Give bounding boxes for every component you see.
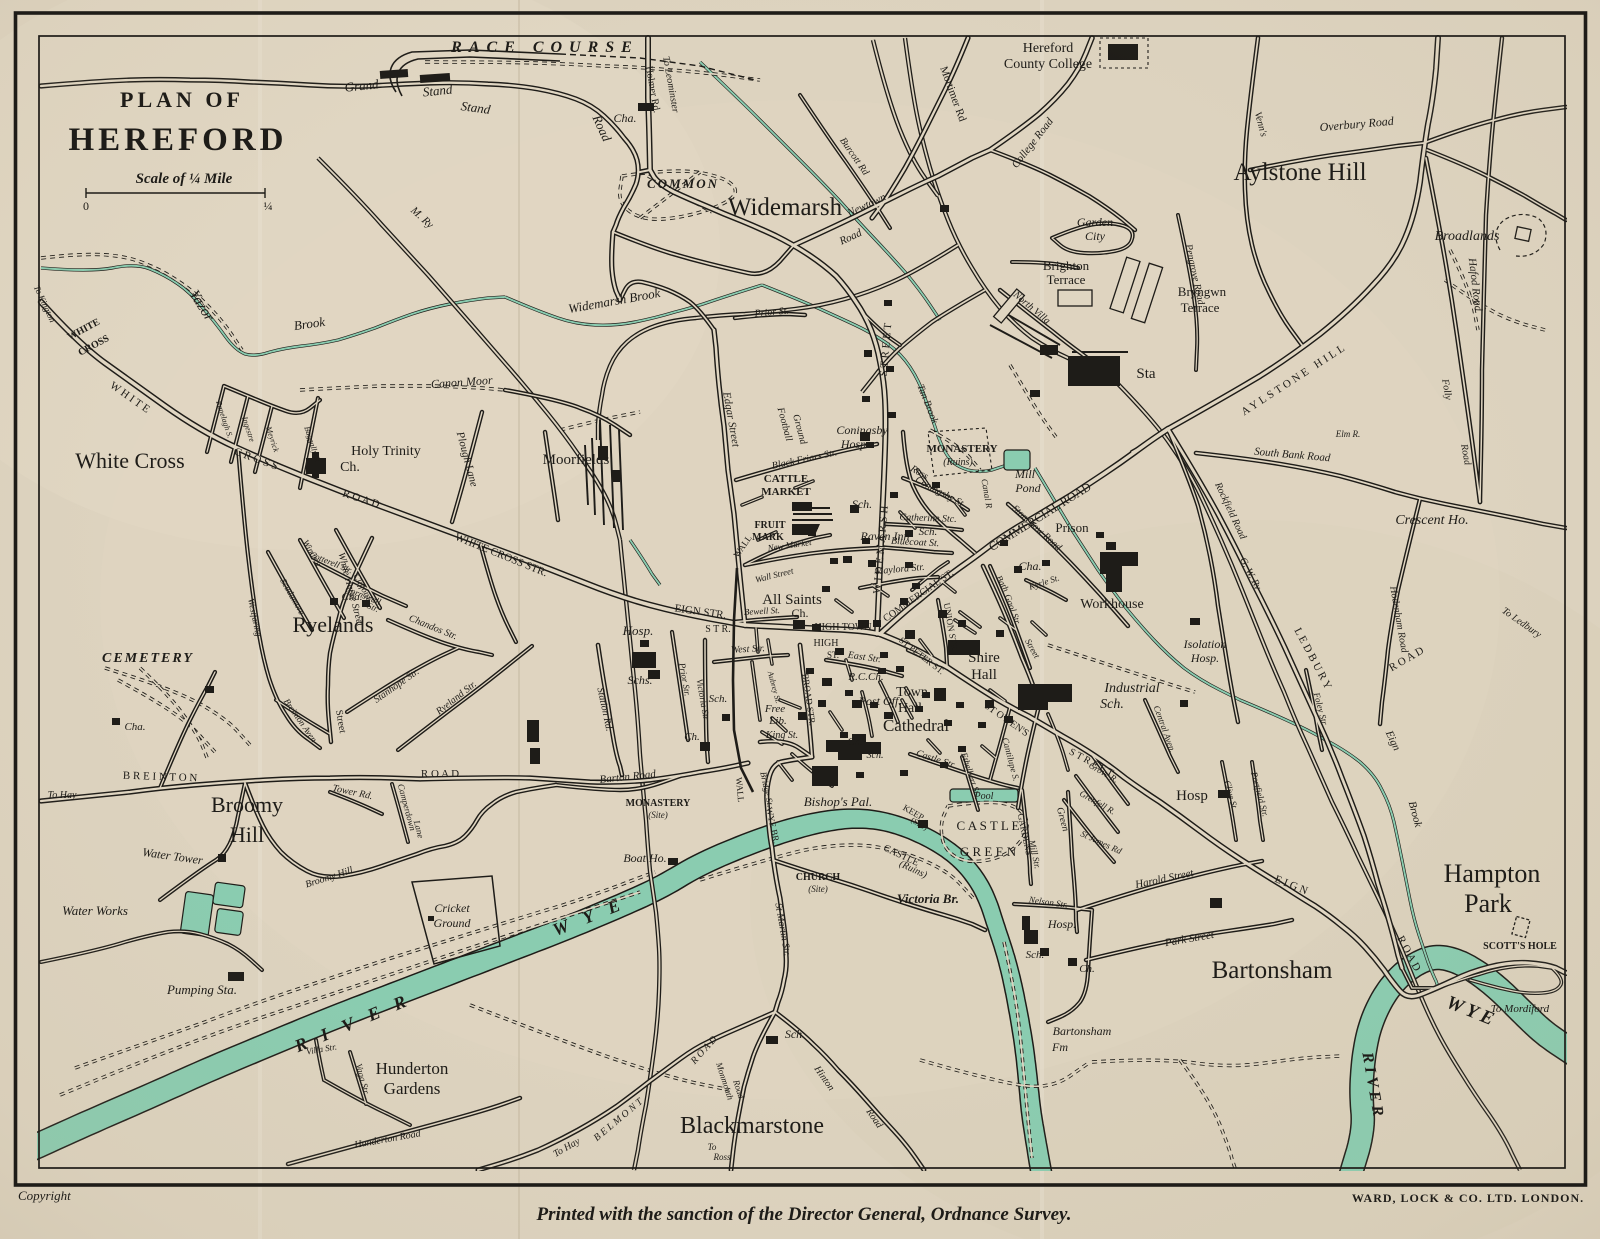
svg-text:Holy Trinity: Holy Trinity — [351, 444, 421, 459]
svg-text:Sch.: Sch. — [709, 693, 728, 705]
svg-text:Park: Park — [1464, 889, 1512, 918]
svg-text:MONASTERY: MONASTERY — [626, 798, 691, 809]
svg-text:CATTLE: CATTLE — [764, 473, 808, 485]
svg-text:Aylstone Hill: Aylstone Hill — [1233, 159, 1366, 186]
svg-text:Bartonsham: Bartonsham — [1053, 1024, 1112, 1038]
svg-text:Sch.: Sch. — [919, 526, 938, 538]
svg-text:Post Off.: Post Off. — [858, 694, 902, 708]
svg-text:Sch.: Sch. — [1100, 697, 1124, 712]
svg-text:Printed with the sanction of t: Printed with the sanction of the Directo… — [535, 1204, 1071, 1225]
svg-text:Widemarsh: Widemarsh — [728, 194, 843, 221]
svg-text:SCOTT'S HOLE: SCOTT'S HOLE — [1483, 941, 1557, 952]
svg-text:County College: County College — [1004, 57, 1092, 72]
svg-text:Catherine Stc.: Catherine Stc. — [899, 512, 957, 525]
svg-text:Cha.: Cha. — [124, 721, 145, 733]
svg-text:R.C.Ch.: R.C.Ch. — [847, 671, 883, 683]
svg-text:Gardens: Gardens — [384, 1079, 441, 1098]
svg-text:Pool: Pool — [974, 791, 994, 802]
svg-text:Sta: Sta — [1136, 366, 1156, 382]
svg-text:Hall: Hall — [898, 701, 922, 716]
svg-text:Bartonsham: Bartonsham — [1212, 957, 1333, 984]
svg-text:(Ruins): (Ruins) — [943, 457, 973, 468]
svg-text:Victoria Br.: Victoria Br. — [897, 891, 959, 906]
svg-text:Mill: Mill — [1014, 467, 1036, 481]
svg-text:Stand: Stand — [422, 81, 454, 99]
svg-text:Scale of ¼ Mile: Scale of ¼ Mile — [136, 171, 233, 187]
svg-text:Moorfields: Moorfields — [543, 452, 610, 468]
svg-text:CHURCH: CHURCH — [796, 872, 841, 883]
svg-text:PLAN OF: PLAN OF — [120, 87, 244, 112]
svg-text:Industrial: Industrial — [1103, 681, 1159, 696]
svg-text:Free: Free — [764, 703, 785, 715]
svg-text:R O A D: R O A D — [421, 768, 459, 780]
svg-text:Hampton: Hampton — [1444, 859, 1541, 888]
svg-text:C A S T L E: C A S T L E — [957, 818, 1020, 833]
svg-text:(Site): (Site) — [648, 810, 668, 820]
svg-text:Shire: Shire — [968, 650, 1000, 666]
svg-text:Blackmarstone: Blackmarstone — [680, 1113, 824, 1139]
svg-text:Isolation: Isolation — [1183, 637, 1227, 651]
svg-text:Hill: Hill — [230, 822, 264, 847]
svg-text:To: To — [708, 1142, 717, 1152]
svg-text:Bishop's Pal.: Bishop's Pal. — [804, 794, 873, 809]
svg-text:Brighton: Brighton — [1043, 258, 1090, 273]
svg-text:S T R.: S T R. — [705, 624, 730, 635]
svg-text:Pumping Sta.: Pumping Sta. — [166, 982, 237, 997]
svg-text:Bewell St.: Bewell St. — [744, 605, 780, 617]
svg-text:Broadlands: Broadlands — [1435, 229, 1500, 244]
svg-text:Hosp.: Hosp. — [1047, 917, 1076, 931]
svg-text:Hosp.: Hosp. — [622, 623, 654, 638]
svg-text:Elm R.: Elm R. — [1335, 429, 1361, 439]
svg-text:Sch.: Sch. — [867, 750, 884, 761]
svg-text:HEREFORD: HEREFORD — [68, 122, 287, 158]
svg-text:Fm: Fm — [1051, 1040, 1068, 1054]
svg-text:Coningsby: Coningsby — [836, 423, 888, 437]
svg-text:Cha.: Cha. — [1018, 559, 1041, 573]
svg-text:Sch.: Sch. — [852, 497, 872, 511]
svg-text:Sch.: Sch. — [1026, 949, 1045, 961]
svg-text:Cathedral: Cathedral — [883, 716, 949, 735]
svg-text:King St.: King St. — [765, 730, 798, 741]
svg-text:Ch.: Ch. — [340, 460, 360, 475]
svg-text:Prison: Prison — [1055, 520, 1089, 535]
svg-text:Pond: Pond — [1014, 481, 1041, 495]
svg-text:Sch.: Sch. — [785, 1027, 805, 1041]
svg-text:0: 0 — [83, 199, 89, 213]
svg-text:To Hay: To Hay — [48, 790, 77, 801]
svg-text:G R E E N: G R E E N — [960, 844, 1017, 859]
svg-text:West Str.: West Str. — [731, 643, 766, 656]
svg-text:White Cross: White Cross — [75, 448, 184, 473]
svg-text:Broomy: Broomy — [211, 792, 283, 817]
svg-text:Hall: Hall — [971, 667, 997, 683]
svg-text:To Mordiford: To Mordiford — [1491, 1003, 1550, 1015]
svg-text:RACE COURSE: RACE COURSE — [450, 39, 639, 56]
svg-text:Ch.: Ch. — [847, 736, 863, 748]
svg-text:Cricket: Cricket — [434, 901, 470, 915]
svg-text:MONASTERY: MONASTERY — [926, 443, 997, 455]
svg-text:Lib.: Lib. — [768, 715, 786, 727]
svg-text:Hosp.: Hosp. — [840, 437, 869, 451]
svg-text:Ground: Ground — [434, 916, 472, 930]
svg-text:Schs.: Schs. — [628, 673, 653, 687]
svg-text:Ross: Ross — [712, 1152, 731, 1162]
svg-text:Hosp.: Hosp. — [1190, 651, 1219, 665]
svg-text:COMMON: COMMON — [647, 176, 719, 191]
svg-text:Ch.: Ch. — [791, 606, 808, 620]
svg-text:Water Works: Water Works — [62, 903, 128, 918]
svg-text:Cha.: Cha. — [613, 111, 636, 125]
svg-text:MARKET: MARKET — [761, 486, 811, 498]
svg-text:Ch.: Ch. — [684, 731, 700, 743]
svg-text:Hosp: Hosp — [1176, 788, 1208, 804]
svg-text:Hunderton: Hunderton — [376, 1059, 449, 1078]
svg-text:¼: ¼ — [264, 199, 273, 213]
svg-text:Terrace: Terrace — [1047, 272, 1086, 287]
svg-text:(Site): (Site) — [808, 884, 828, 894]
svg-text:City: City — [1085, 229, 1106, 243]
svg-text:Boat Ho.: Boat Ho. — [623, 851, 666, 865]
svg-text:Garden: Garden — [1077, 215, 1113, 229]
svg-text:CEMETERY: CEMETERY — [102, 651, 194, 666]
svg-text:Hereford: Hereford — [1023, 41, 1074, 56]
svg-text:Workhouse: Workhouse — [1080, 597, 1143, 612]
svg-text:Crescent Ho.: Crescent Ho. — [1395, 513, 1468, 528]
svg-text:ST.: ST. — [827, 650, 839, 660]
svg-text:Copyright: Copyright — [18, 1188, 71, 1203]
svg-text:WARD, LOCK & CO. LTD. LONDON.: WARD, LOCK & CO. LTD. LONDON. — [1352, 1191, 1584, 1205]
svg-text:HIGH: HIGH — [814, 638, 839, 649]
svg-text:FRUIT: FRUIT — [754, 520, 785, 531]
svg-text:Ch.: Ch. — [1079, 963, 1095, 975]
svg-text:HIGH TOWN: HIGH TOWN — [814, 622, 871, 633]
